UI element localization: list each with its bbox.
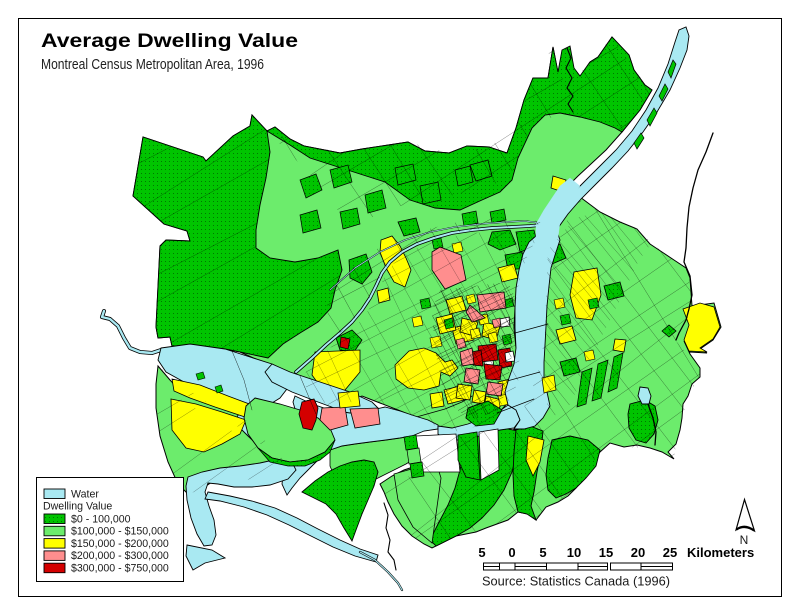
svg-text:$150,000 - $200,000: $150,000 - $200,000 (71, 538, 169, 550)
svg-text:5: 5 (478, 545, 485, 560)
svg-text:Montreal Census Metropolitan A: Montreal Census Metropolitan Area, 1996 (41, 57, 264, 73)
svg-text:$100,000 - $150,000: $100,000 - $150,000 (71, 526, 169, 538)
svg-text:Source: Statistics Canada (199: Source: Statistics Canada (1996) (482, 574, 670, 589)
svg-text:$300,000 - $750,000: $300,000 - $750,000 (71, 563, 169, 575)
svg-text:$200,000 - $300,000: $200,000 - $300,000 (71, 550, 169, 562)
svg-text:Kilometers: Kilometers (687, 545, 754, 560)
svg-text:Dwelling Value: Dwelling Value (43, 501, 112, 513)
svg-text:0: 0 (508, 545, 515, 560)
svg-text:Water: Water (71, 489, 99, 501)
svg-text:Average Dwelling Value: Average Dwelling Value (41, 31, 298, 52)
svg-text:10: 10 (567, 545, 581, 560)
svg-text:20: 20 (631, 545, 645, 560)
svg-text:5: 5 (539, 545, 546, 560)
svg-text:25: 25 (663, 545, 677, 560)
svg-text:N: N (740, 533, 749, 547)
svg-text:15: 15 (599, 545, 613, 560)
svg-text:$0 - 100,000: $0 - 100,000 (71, 514, 131, 526)
